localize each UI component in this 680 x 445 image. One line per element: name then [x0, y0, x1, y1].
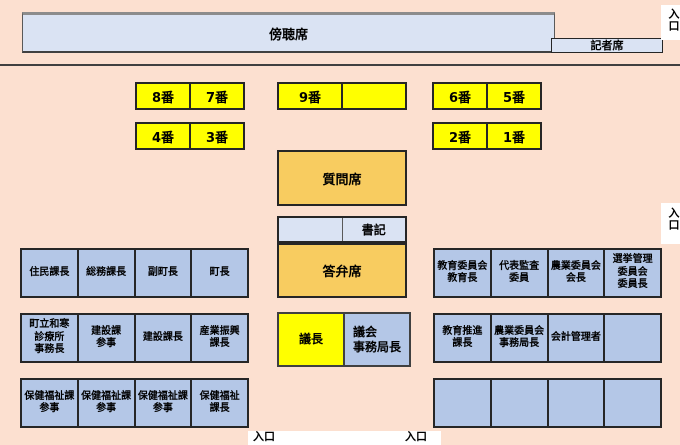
seat-education-superintendent: 教育委員会 教育長: [435, 250, 490, 296]
clerk-seat: 書記: [342, 218, 406, 241]
seat-resident-section-chief: 住民課長: [22, 250, 77, 296]
officials-right-row-2: 教育推進 課長 農業委員会 事務局長 会計管理者: [433, 313, 662, 363]
officials-right-row-3: [433, 378, 662, 428]
member-seat-pair-6-5: 6番 5番: [432, 82, 542, 110]
seat-education-promotion-chief: 教育推進 課長: [435, 315, 490, 361]
member-seat-pair-4-3: 4番 3番: [135, 122, 245, 150]
member-seat-blank: [341, 84, 405, 108]
question-seat: 質問席: [277, 150, 407, 206]
member-seat-3: 3番: [189, 124, 243, 148]
officials-left-row-1: 住民課長 総務課長 副町長 町長: [20, 248, 249, 298]
council-seating-chart: 傍聴席 記者席 入口 入口 入口 入口 8番 7番 9番 6番 5番 4番 3番…: [0, 0, 680, 445]
officials-left-row-3: 保健福祉課 参事 保健福祉課 参事 保健福祉課 参事 保健福祉 課長: [20, 378, 249, 428]
entrance-label-top-right: 入口: [665, 8, 680, 32]
seat-health-welfare-counselor-1: 保健福祉課 参事: [22, 380, 77, 426]
seat-health-welfare-counselor-2: 保健福祉課 参事: [77, 380, 134, 426]
member-seat-7: 7番: [189, 84, 243, 108]
seat-right-row3-empty-2: [490, 380, 547, 426]
member-seat-8: 8番: [137, 84, 189, 108]
clerk-seat-empty: [279, 218, 342, 241]
entrance-label-mid-right: 入口: [665, 207, 680, 231]
seat-health-welfare-chief: 保健福祉 課長: [190, 380, 247, 426]
seat-clinic-office-chief: 町立和寒 診療所 事務長: [22, 315, 77, 361]
chair-seat: 議長: [279, 314, 343, 365]
clerk-row: 書記: [277, 216, 407, 243]
member-seat-pair-8-7: 8番 7番: [135, 82, 245, 110]
press-seats: 記者席: [551, 38, 663, 53]
public-gallery-seats: 傍聴席: [22, 12, 555, 53]
seat-right-row3-empty-3: [547, 380, 604, 426]
member-seat-4: 4番: [137, 124, 189, 148]
seat-mayor: 町長: [190, 250, 247, 296]
member-seat-9: 9番: [279, 84, 341, 108]
member-seat-pair-9-blank: 9番: [277, 82, 407, 110]
officials-right-row-1: 教育委員会 教育長 代表監査 委員 農業委員会 会長 選挙管理 委員会 委員長: [433, 248, 662, 298]
answer-seat: 答弁席: [277, 243, 407, 298]
council-secretary-general-seat: 議会 事務局長: [343, 314, 409, 365]
seat-health-welfare-counselor-3: 保健福祉課 参事: [134, 380, 191, 426]
seat-accounting-manager: 会計管理者: [547, 315, 604, 361]
seat-election-committee-chair: 選挙管理 委員会 委員長: [603, 250, 660, 296]
member-seat-1: 1番: [486, 124, 540, 148]
seat-general-affairs-chief: 総務課長: [77, 250, 134, 296]
seat-construction-chief: 建設課長: [134, 315, 191, 361]
entrance-label-bottom-right: 入口: [405, 430, 427, 444]
member-seat-pair-2-1: 2番 1番: [432, 122, 542, 150]
seat-right-row2-empty: [603, 315, 660, 361]
seat-right-row3-empty-4: [603, 380, 660, 426]
member-seat-5: 5番: [486, 84, 540, 108]
member-seat-6: 6番: [434, 84, 486, 108]
seat-construction-counselor: 建設課 参事: [77, 315, 134, 361]
seat-agricultural-committee-secretary: 農業委員会 事務局長: [490, 315, 547, 361]
seat-representative-auditor: 代表監査 委員: [490, 250, 547, 296]
gallery-divider-line: [0, 64, 680, 66]
chair-row: 議長 議会 事務局長: [277, 312, 411, 367]
entrance-label-bottom-left: 入口: [253, 430, 275, 444]
seat-agricultural-committee-chair: 農業委員会 会長: [547, 250, 604, 296]
seat-industry-promotion-chief: 産業振興 課長: [190, 315, 247, 361]
seat-right-row3-empty-1: [435, 380, 490, 426]
officials-left-row-2: 町立和寒 診療所 事務長 建設課 参事 建設課長 産業振興 課長: [20, 313, 249, 363]
seat-deputy-mayor: 副町長: [134, 250, 191, 296]
member-seat-2: 2番: [434, 124, 486, 148]
